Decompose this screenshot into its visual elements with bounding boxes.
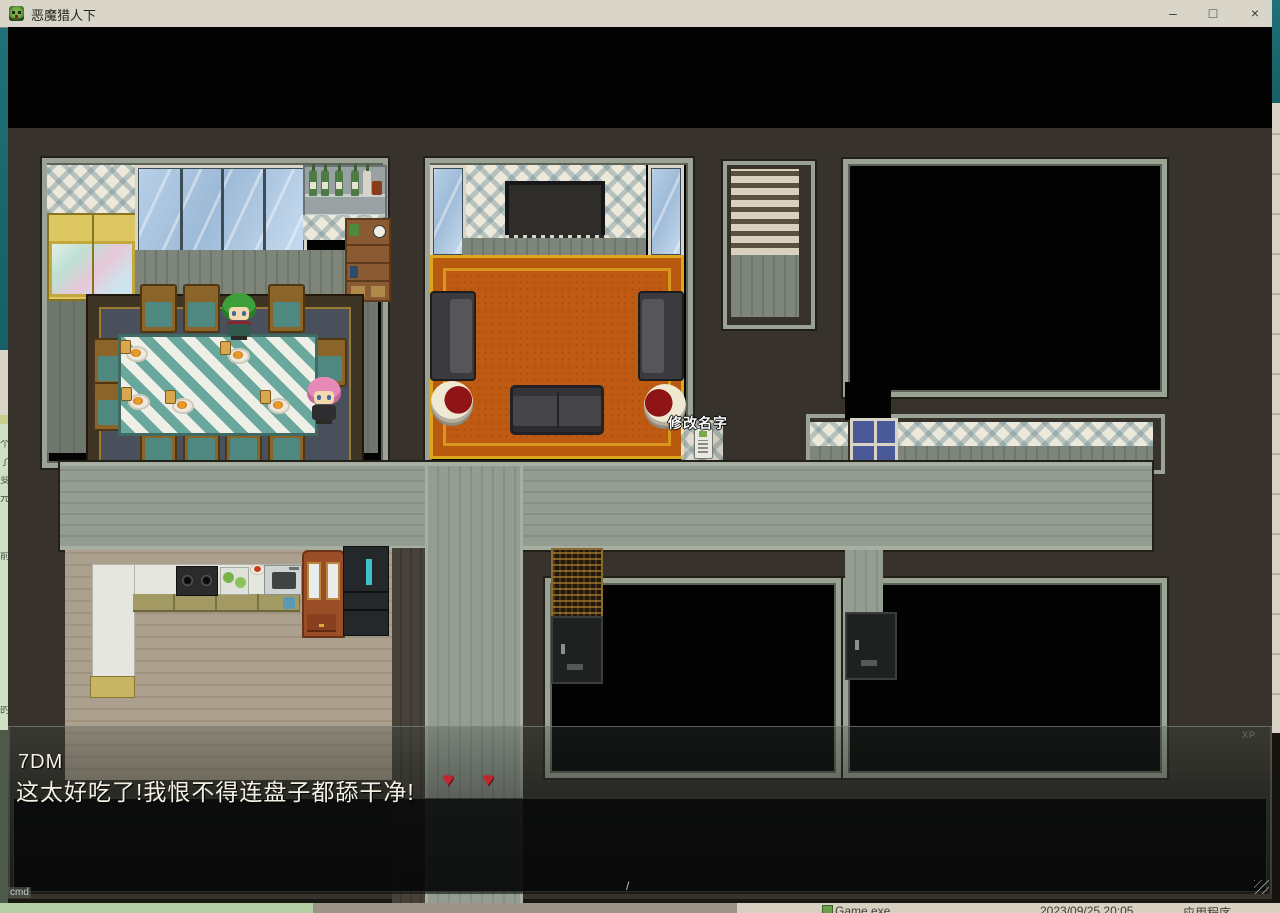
dining-chair: [140, 284, 177, 333]
sofa: [510, 385, 604, 435]
doorway-gap: [845, 382, 891, 420]
explorer-file-row[interactable]: Game.exe 2023/09/25 20:05 应用程序: [737, 903, 1280, 913]
wardrobe: [845, 612, 897, 680]
plank-patch: [845, 550, 883, 612]
wine-shelf: [303, 165, 387, 219]
blue-bucket: [283, 597, 295, 609]
egg-chair-left: [431, 381, 473, 423]
slash-mark: /: [626, 879, 629, 893]
tv: [505, 181, 605, 241]
dining-wallpaper-left: [47, 165, 135, 215]
tomato-dish: [250, 564, 265, 575]
dialog-window[interactable]: 7DM 这太好吃了!我恨不得连盘子都舔干净! ♥ ♥: [8, 726, 1272, 894]
amber-bottle: [372, 181, 382, 195]
file-modified-date: 2023/09/25 20:05: [1040, 904, 1133, 913]
npc-green-hair[interactable]: [221, 292, 257, 342]
taskbar-taupe-sliver: [313, 903, 737, 913]
desktop-wallpaper-sliver: [1272, 0, 1280, 103]
background-highlight-sliver: [0, 415, 8, 424]
louver-wall: [723, 161, 815, 329]
dialog-inner-panel: [13, 798, 1267, 892]
white-bottle: [363, 170, 371, 196]
living-window-right: [648, 165, 684, 258]
china-cabinet: [302, 550, 345, 638]
edge-char: 前: [0, 552, 8, 562]
desktop-wallpaper-left-sliver: [0, 27, 8, 350]
dining-window: [135, 165, 307, 256]
counter-base-cabinet: [90, 676, 135, 698]
potted-plant: [349, 224, 359, 236]
plate-of-food: [228, 348, 250, 364]
dialog-message: 这太好吃了!我恨不得连盘子都舔干净!: [16, 773, 415, 807]
npc-pink-hair[interactable]: [306, 376, 342, 426]
armchair-right: [638, 291, 684, 381]
cup: [165, 390, 176, 404]
yellow-display-cabinet: [47, 213, 137, 301]
game-letterbox-top: [8, 27, 1272, 128]
dining-chair: [183, 284, 220, 333]
change-name-label[interactable]: 修改名字: [668, 413, 728, 433]
cup: [121, 387, 132, 401]
maximize-button[interactable]: □: [1198, 3, 1228, 24]
background-window-left-sliver: [0, 350, 8, 415]
cup: [120, 340, 131, 354]
edge-char: 的: [0, 706, 8, 716]
background-window-right-sliver: [1272, 103, 1280, 733]
living-window-left: [430, 165, 466, 258]
resize-grip[interactable]: [1254, 880, 1269, 894]
plate-of-food: [268, 398, 290, 414]
window-titlebar[interactable]: 恶魔猎人下: [0, 0, 1272, 28]
books: [350, 266, 358, 278]
wine-bottle: [309, 170, 317, 196]
cutting-board: [220, 567, 249, 595]
ornate-rug: [551, 548, 603, 622]
taskbar-green-sliver: [0, 903, 315, 913]
background-text-window-sliver: [0, 424, 8, 730]
file-type: 应用程序: [1183, 904, 1231, 913]
refrigerator: [343, 546, 389, 636]
background-dark-right-sliver: [1272, 733, 1280, 913]
edge-char: 个: [0, 440, 8, 450]
wine-bottle: [351, 170, 359, 196]
dining-table: [118, 334, 318, 436]
cabinet-fronts: [133, 594, 300, 612]
window-title: 恶魔猎人下: [31, 5, 96, 24]
edge-char: 了: [0, 458, 8, 468]
wine-bottle: [321, 170, 329, 196]
heart-icon: ♥: [442, 769, 454, 792]
corridor-horizontal: [60, 462, 1152, 550]
cup: [220, 341, 231, 355]
basket: [371, 286, 385, 297]
edge-char: 变: [0, 476, 8, 486]
cmd-label: cmd: [8, 887, 31, 898]
armchair-left: [430, 291, 476, 381]
sink: [264, 565, 302, 595]
wine-bottle: [335, 170, 343, 196]
screenshot-root: 个 了 变 元 前 的 Game.exe 2023/09/25 20:05 应用…: [0, 0, 1280, 913]
dialog-watermark: XP: [1242, 730, 1256, 740]
bookshelf: [345, 218, 391, 302]
louver-slats: [731, 169, 799, 255]
file-name: Game.exe: [835, 904, 890, 913]
dining-chair: [268, 284, 305, 333]
wardrobe: [551, 616, 603, 684]
game-exe-icon: [822, 905, 833, 913]
kitchen-counter-return: [92, 564, 135, 680]
dialog-speaker-name: 7DM: [18, 751, 63, 774]
heart-icon: ♥: [482, 769, 494, 792]
background-dark-left-sliver: [0, 730, 8, 903]
window-bottom-edge: [8, 899, 1272, 903]
cup: [260, 390, 271, 404]
dark-room-upper-right: [843, 159, 1167, 397]
stove: [176, 566, 218, 596]
minimize-button[interactable]: –: [1158, 3, 1188, 24]
clock: [373, 225, 386, 238]
app-icon: [9, 6, 24, 21]
living-wall-planks: [462, 238, 646, 255]
edge-char: 元: [0, 494, 8, 504]
close-button[interactable]: ×: [1240, 3, 1270, 24]
